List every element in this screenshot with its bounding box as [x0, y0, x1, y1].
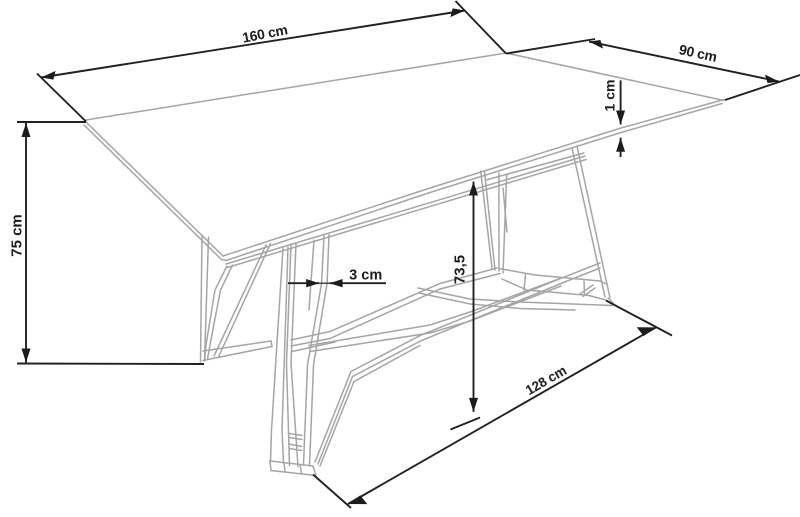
- svg-text:3 cm: 3 cm: [349, 268, 382, 284]
- svg-text:1 cm: 1 cm: [602, 80, 618, 112]
- svg-text:75 cm: 75 cm: [9, 214, 26, 257]
- svg-text:73,5: 73,5: [452, 255, 469, 284]
